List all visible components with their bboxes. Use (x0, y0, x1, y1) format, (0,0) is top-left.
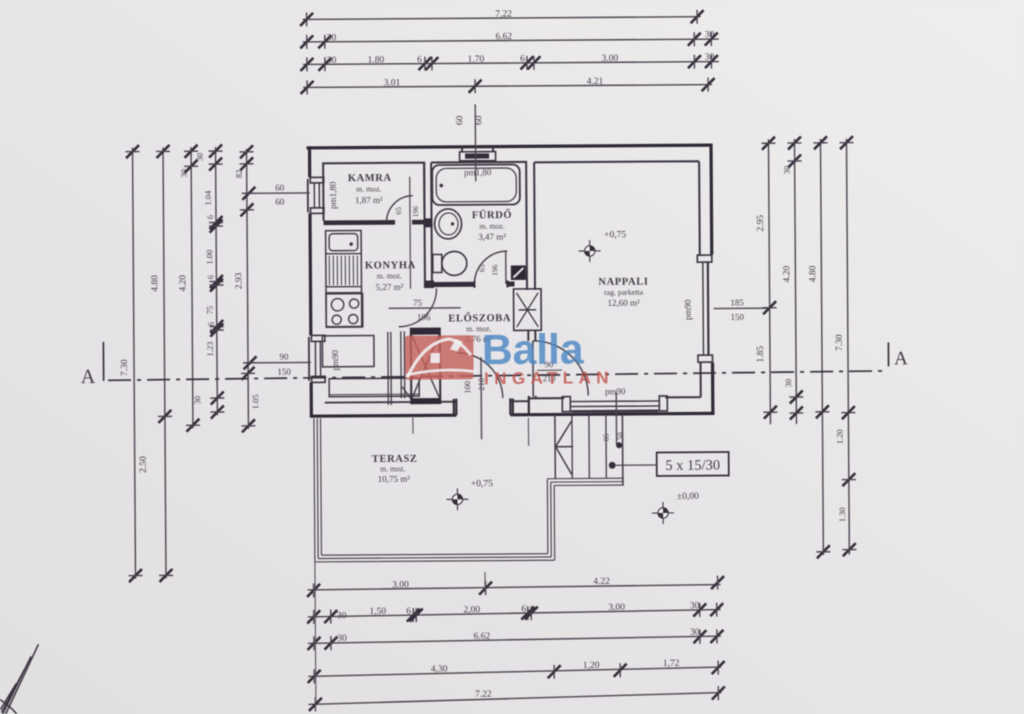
svg-text:3,47 m²: 3,47 m² (478, 232, 506, 242)
svg-text:KONYHA: KONYHA (365, 260, 416, 271)
svg-text:m. moz.: m. moz. (356, 184, 381, 193)
svg-text:75: 75 (413, 298, 423, 308)
svg-text:75: 75 (205, 306, 215, 315)
svg-text:m. moz.: m. moz. (380, 464, 405, 473)
svg-text:30: 30 (327, 33, 337, 43)
svg-text:6: 6 (417, 55, 422, 65)
svg-text:+0,75: +0,75 (471, 479, 493, 489)
svg-text:4.80: 4.80 (150, 275, 160, 292)
svg-text:4.21: 4.21 (587, 77, 604, 87)
svg-text:6: 6 (206, 322, 216, 326)
svg-text:m. moz.: m. moz. (479, 222, 504, 231)
svg-text:6: 6 (521, 604, 526, 614)
svg-text:6: 6 (520, 54, 525, 64)
svg-text:1,50: 1,50 (369, 607, 386, 617)
svg-text:60: 60 (275, 183, 285, 193)
svg-text:65: 65 (394, 207, 403, 215)
svg-text:NAPPALI: NAPPALI (598, 277, 648, 288)
svg-text:85: 85 (602, 433, 611, 441)
svg-text:30: 30 (195, 153, 205, 162)
svg-text:50: 50 (616, 432, 625, 440)
svg-text:1.04: 1.04 (203, 190, 213, 206)
svg-text:pm90: pm90 (330, 349, 340, 370)
svg-text:6.62: 6.62 (495, 32, 512, 42)
svg-text:30: 30 (179, 169, 189, 178)
svg-text:90: 90 (279, 352, 289, 362)
svg-text:KAMRA: KAMRA (348, 173, 392, 184)
svg-text:30: 30 (337, 611, 347, 621)
svg-text:150: 150 (730, 312, 744, 322)
svg-text:30: 30 (690, 628, 700, 638)
svg-text:1,87 m²: 1,87 m² (355, 195, 383, 205)
svg-text:+0,75: +0,75 (604, 230, 626, 240)
svg-text:196: 196 (417, 312, 431, 322)
svg-text:5,27 m²: 5,27 m² (376, 282, 404, 292)
svg-text:2.50: 2.50 (139, 456, 149, 473)
svg-text:1.05: 1.05 (250, 394, 260, 409)
svg-text:1.70: 1.70 (468, 55, 485, 65)
svg-text:30: 30 (783, 379, 793, 388)
svg-text:FÜRDŐ: FÜRDŐ (472, 208, 512, 221)
svg-text:pm90: pm90 (605, 386, 626, 396)
svg-text:150: 150 (277, 367, 291, 377)
svg-text:7.22: 7.22 (475, 690, 492, 700)
svg-text:10,75 m²: 10,75 m² (378, 474, 411, 484)
svg-text:1.80: 1.80 (368, 55, 385, 65)
svg-text:82: 82 (234, 170, 244, 179)
svg-text:1.85: 1.85 (756, 346, 766, 363)
svg-text:Balla: Balla (482, 326, 584, 374)
svg-text:4,30: 4,30 (431, 664, 448, 674)
svg-text:1,72: 1,72 (663, 659, 680, 669)
svg-text:30: 30 (327, 56, 337, 66)
svg-text:3.01: 3.01 (384, 78, 401, 88)
svg-text:185: 185 (730, 297, 744, 307)
svg-text:2.95: 2.95 (756, 215, 766, 232)
svg-text:3.00: 3.00 (392, 580, 409, 590)
svg-text:100: 100 (462, 381, 472, 394)
svg-text:30: 30 (705, 53, 715, 63)
svg-text:TERASZ: TERASZ (372, 454, 418, 465)
svg-text:30: 30 (782, 166, 792, 175)
svg-text:60: 60 (474, 115, 484, 125)
svg-text:6: 6 (205, 215, 215, 219)
svg-text:1.00: 1.00 (204, 250, 214, 265)
svg-text:rag. parketta: rag. parketta (604, 288, 644, 297)
svg-text:4.20: 4.20 (178, 275, 188, 292)
svg-text:30: 30 (192, 396, 202, 405)
svg-text:1.23: 1.23 (205, 342, 215, 357)
svg-text:30: 30 (705, 30, 715, 40)
svg-text:1.30: 1.30 (837, 507, 847, 522)
svg-text:12,60 m²: 12,60 m² (607, 298, 640, 308)
svg-text:30: 30 (690, 601, 700, 611)
svg-text:196: 196 (411, 206, 420, 218)
svg-text:4.22: 4.22 (593, 577, 610, 587)
svg-text:5 x 15/30: 5 x 15/30 (665, 458, 720, 474)
svg-text:2.93: 2.93 (234, 272, 244, 289)
svg-text:60: 60 (275, 197, 285, 207)
svg-text:60: 60 (455, 115, 465, 125)
svg-text:pm90: pm90 (683, 299, 693, 320)
svg-text:1.20: 1.20 (834, 429, 844, 444)
svg-text:6: 6 (205, 275, 215, 279)
svg-text:4.20: 4.20 (782, 265, 792, 282)
svg-text:ELŐSZOBA: ELŐSZOBA (448, 312, 511, 324)
svg-text:6: 6 (406, 607, 411, 617)
svg-text:196: 196 (490, 264, 499, 276)
svg-text:6.62: 6.62 (474, 632, 491, 642)
svg-text:7.30: 7.30 (835, 334, 845, 351)
svg-text:4.80: 4.80 (808, 265, 818, 282)
svg-text:3.00: 3.00 (602, 54, 619, 64)
svg-text:m. moz.: m. moz. (377, 271, 402, 280)
svg-text:7.22: 7.22 (495, 9, 512, 19)
svg-text:3,00: 3,00 (608, 603, 625, 613)
svg-text:A: A (81, 366, 96, 388)
svg-text:A: A (894, 348, 908, 369)
svg-text:30: 30 (337, 634, 347, 644)
svg-text:±0,00: ±0,00 (677, 492, 699, 502)
svg-text:7.30: 7.30 (120, 359, 130, 376)
svg-text:2,00: 2,00 (463, 605, 480, 615)
svg-text:INGATLAN: INGATLAN (484, 368, 614, 388)
svg-text:pm1,80: pm1,80 (328, 181, 338, 209)
svg-text:1,20: 1,20 (583, 661, 600, 671)
svg-text:65: 65 (477, 264, 486, 272)
svg-text:pm1,80: pm1,80 (464, 167, 492, 177)
